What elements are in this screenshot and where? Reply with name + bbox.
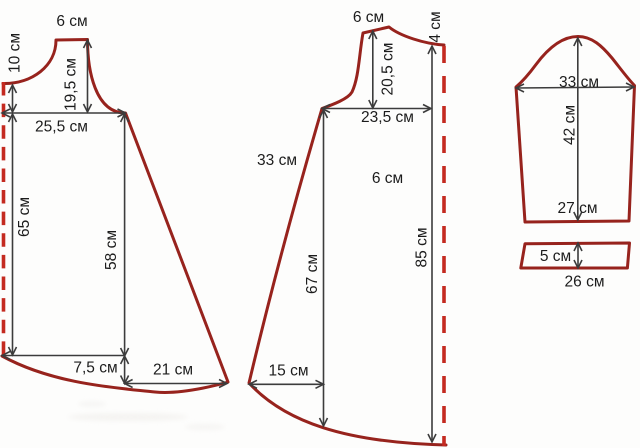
svg-text:6 см: 6 см	[353, 9, 384, 26]
svg-text:7,5 см: 7,5 см	[73, 360, 117, 377]
svg-text:15 см: 15 см	[269, 363, 309, 380]
svg-text:67 см: 67 см	[304, 254, 321, 294]
svg-text:26 см: 26 см	[565, 274, 605, 291]
svg-text:5 см: 5 см	[540, 248, 571, 265]
svg-text:42 см: 42 см	[562, 105, 579, 145]
svg-text:6 см: 6 см	[56, 13, 87, 30]
svg-text:21 см: 21 см	[153, 362, 193, 379]
svg-text:6 см: 6 см	[372, 170, 403, 187]
svg-text:33 см: 33 см	[257, 152, 297, 169]
svg-text:27 см: 27 см	[558, 200, 598, 217]
svg-text:85 см: 85 см	[414, 228, 431, 268]
svg-text:19,5 см: 19,5 см	[63, 58, 80, 111]
svg-text:65 см: 65 см	[16, 197, 33, 237]
svg-text:23,5 см: 23,5 см	[361, 109, 414, 126]
svg-text:10 см: 10 см	[7, 33, 24, 73]
svg-text:25,5 см: 25,5 см	[35, 119, 88, 136]
svg-text:20,5 см: 20,5 см	[380, 43, 397, 96]
svg-text:33 см: 33 см	[559, 74, 599, 91]
svg-text:4 см: 4 см	[427, 11, 444, 42]
svg-text:58 см: 58 см	[103, 230, 120, 270]
